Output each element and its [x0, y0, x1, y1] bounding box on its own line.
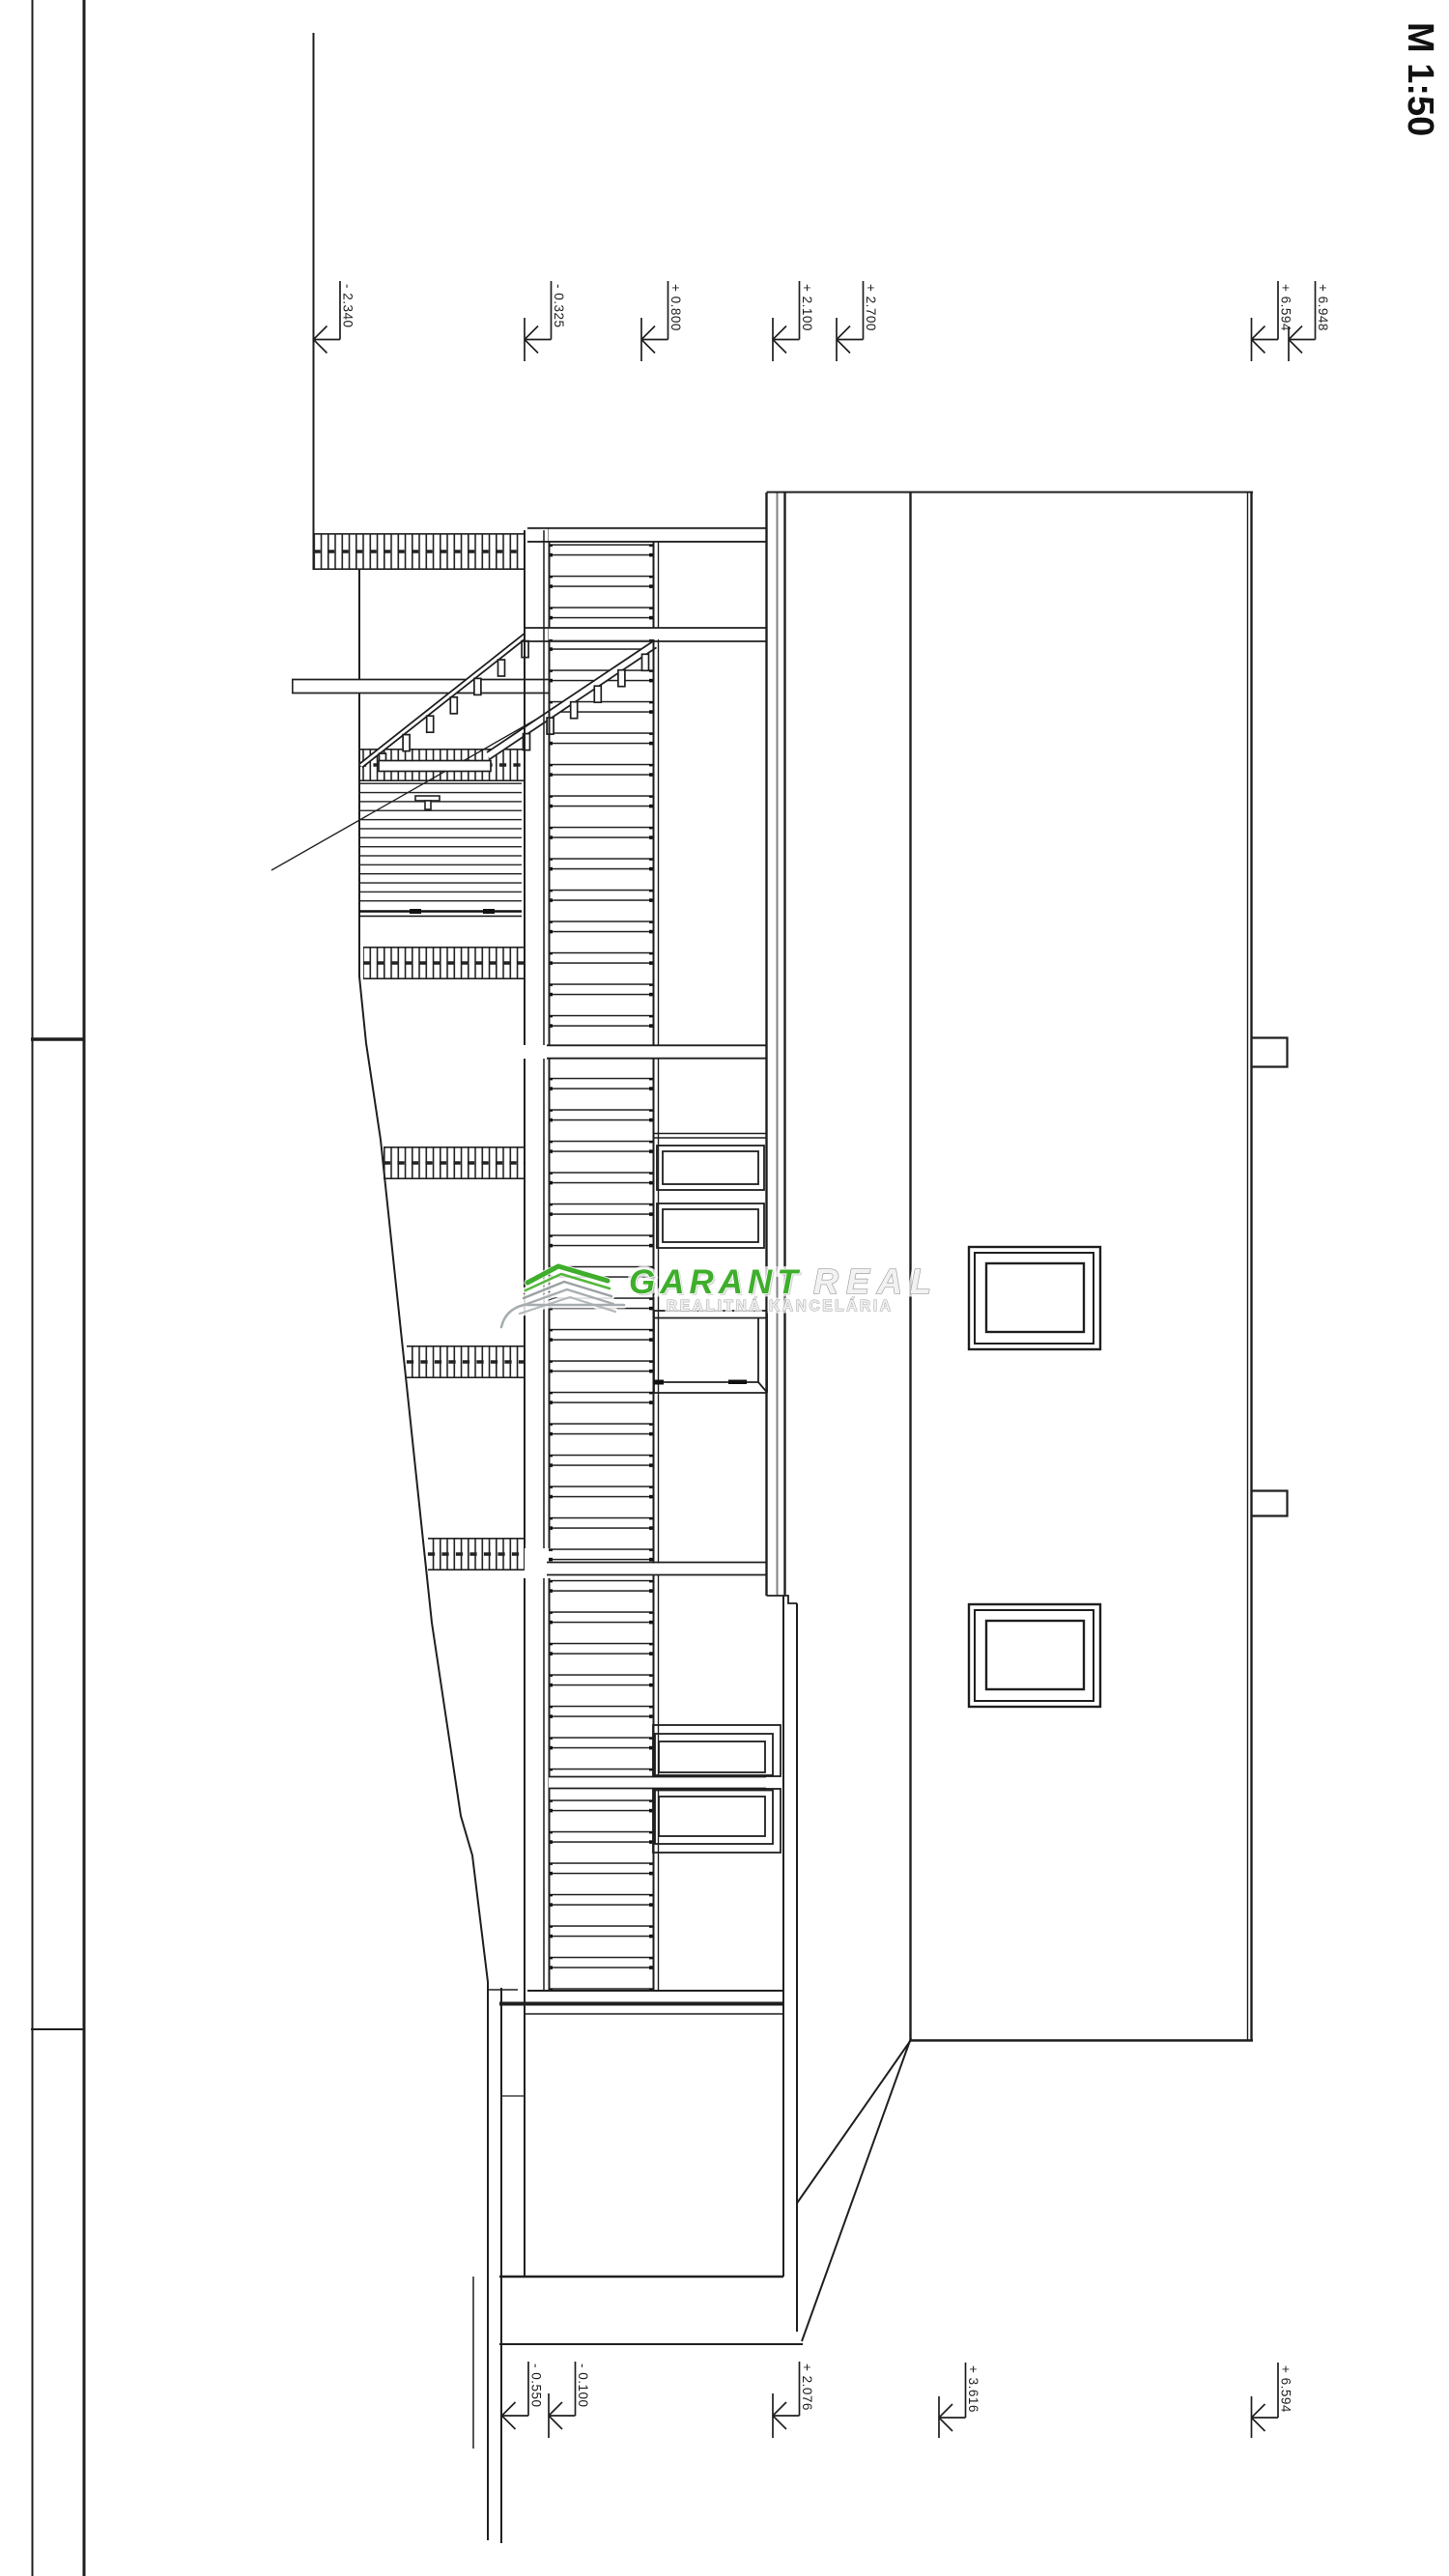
svg-text:+ 6.948: + 6.948	[1316, 284, 1330, 331]
svg-text:+ 2.700: + 2.700	[864, 284, 878, 331]
svg-text:- 0.550: - 0.550	[529, 2364, 544, 2408]
svg-text:- 0.100: - 0.100	[576, 2364, 590, 2408]
svg-text:- 0.325: - 0.325	[552, 284, 566, 328]
svg-text:+ 3.616: + 3.616	[966, 2365, 980, 2413]
svg-text:GARANT: GARANT	[629, 1263, 803, 1301]
svg-text:M 1:50: M 1:50	[1400, 22, 1440, 136]
svg-text:REALITNÁ KANCELÁRIA: REALITNÁ KANCELÁRIA	[667, 1298, 894, 1315]
svg-text:+ 2.076: + 2.076	[800, 2364, 814, 2411]
svg-text:+ 6.594: + 6.594	[1279, 284, 1293, 331]
svg-text:+ 2.100: + 2.100	[800, 284, 814, 331]
svg-text:REAL: REAL	[813, 1261, 939, 1301]
svg-text:+ 0.800: + 0.800	[668, 284, 683, 331]
svg-text:+ 6.594: + 6.594	[1279, 2365, 1293, 2413]
svg-text:- 2.340: - 2.340	[341, 284, 355, 328]
